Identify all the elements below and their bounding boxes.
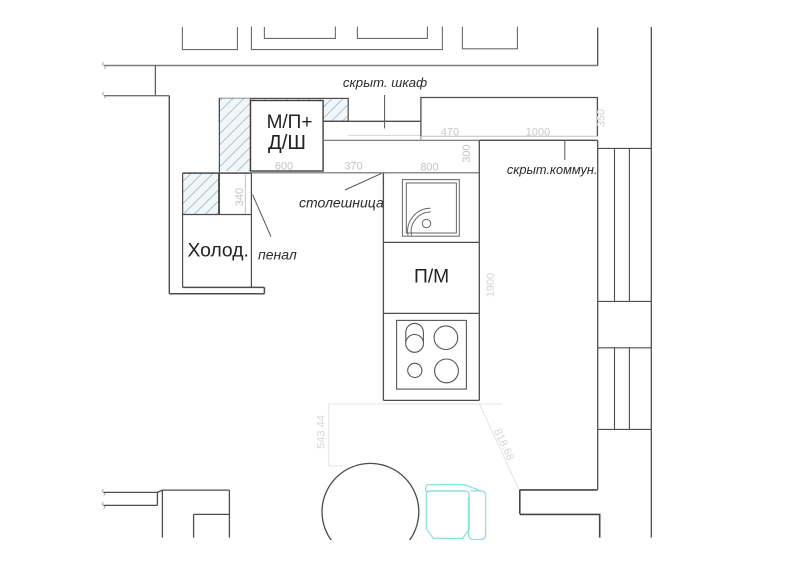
svg-text:П/М: П/М (414, 267, 449, 288)
svg-text:1900: 1900 (485, 273, 497, 297)
svg-text:370: 370 (344, 161, 362, 173)
svg-text:скрыт. шкаф: скрыт. шкаф (343, 75, 427, 90)
svg-text:470: 470 (441, 127, 459, 139)
svg-text:Холод.: Холод. (188, 240, 249, 261)
svg-text:300: 300 (461, 144, 473, 162)
svg-text:1000: 1000 (526, 127, 550, 139)
svg-text:М/П+: М/П+ (267, 112, 313, 133)
svg-text:340: 340 (234, 188, 246, 206)
svg-text:пенал: пенал (258, 247, 297, 263)
svg-text:столешница: столешница (299, 195, 384, 211)
svg-text:350: 350 (596, 109, 608, 127)
svg-text:543.44: 543.44 (316, 415, 328, 449)
svg-text:скрыт.коммун.: скрыт.коммун. (507, 162, 598, 177)
svg-text:818.68: 818.68 (491, 427, 516, 463)
svg-text:800: 800 (420, 162, 438, 174)
svg-text:Д/Ш: Д/Ш (268, 132, 306, 154)
svg-text:600: 600 (275, 161, 293, 173)
